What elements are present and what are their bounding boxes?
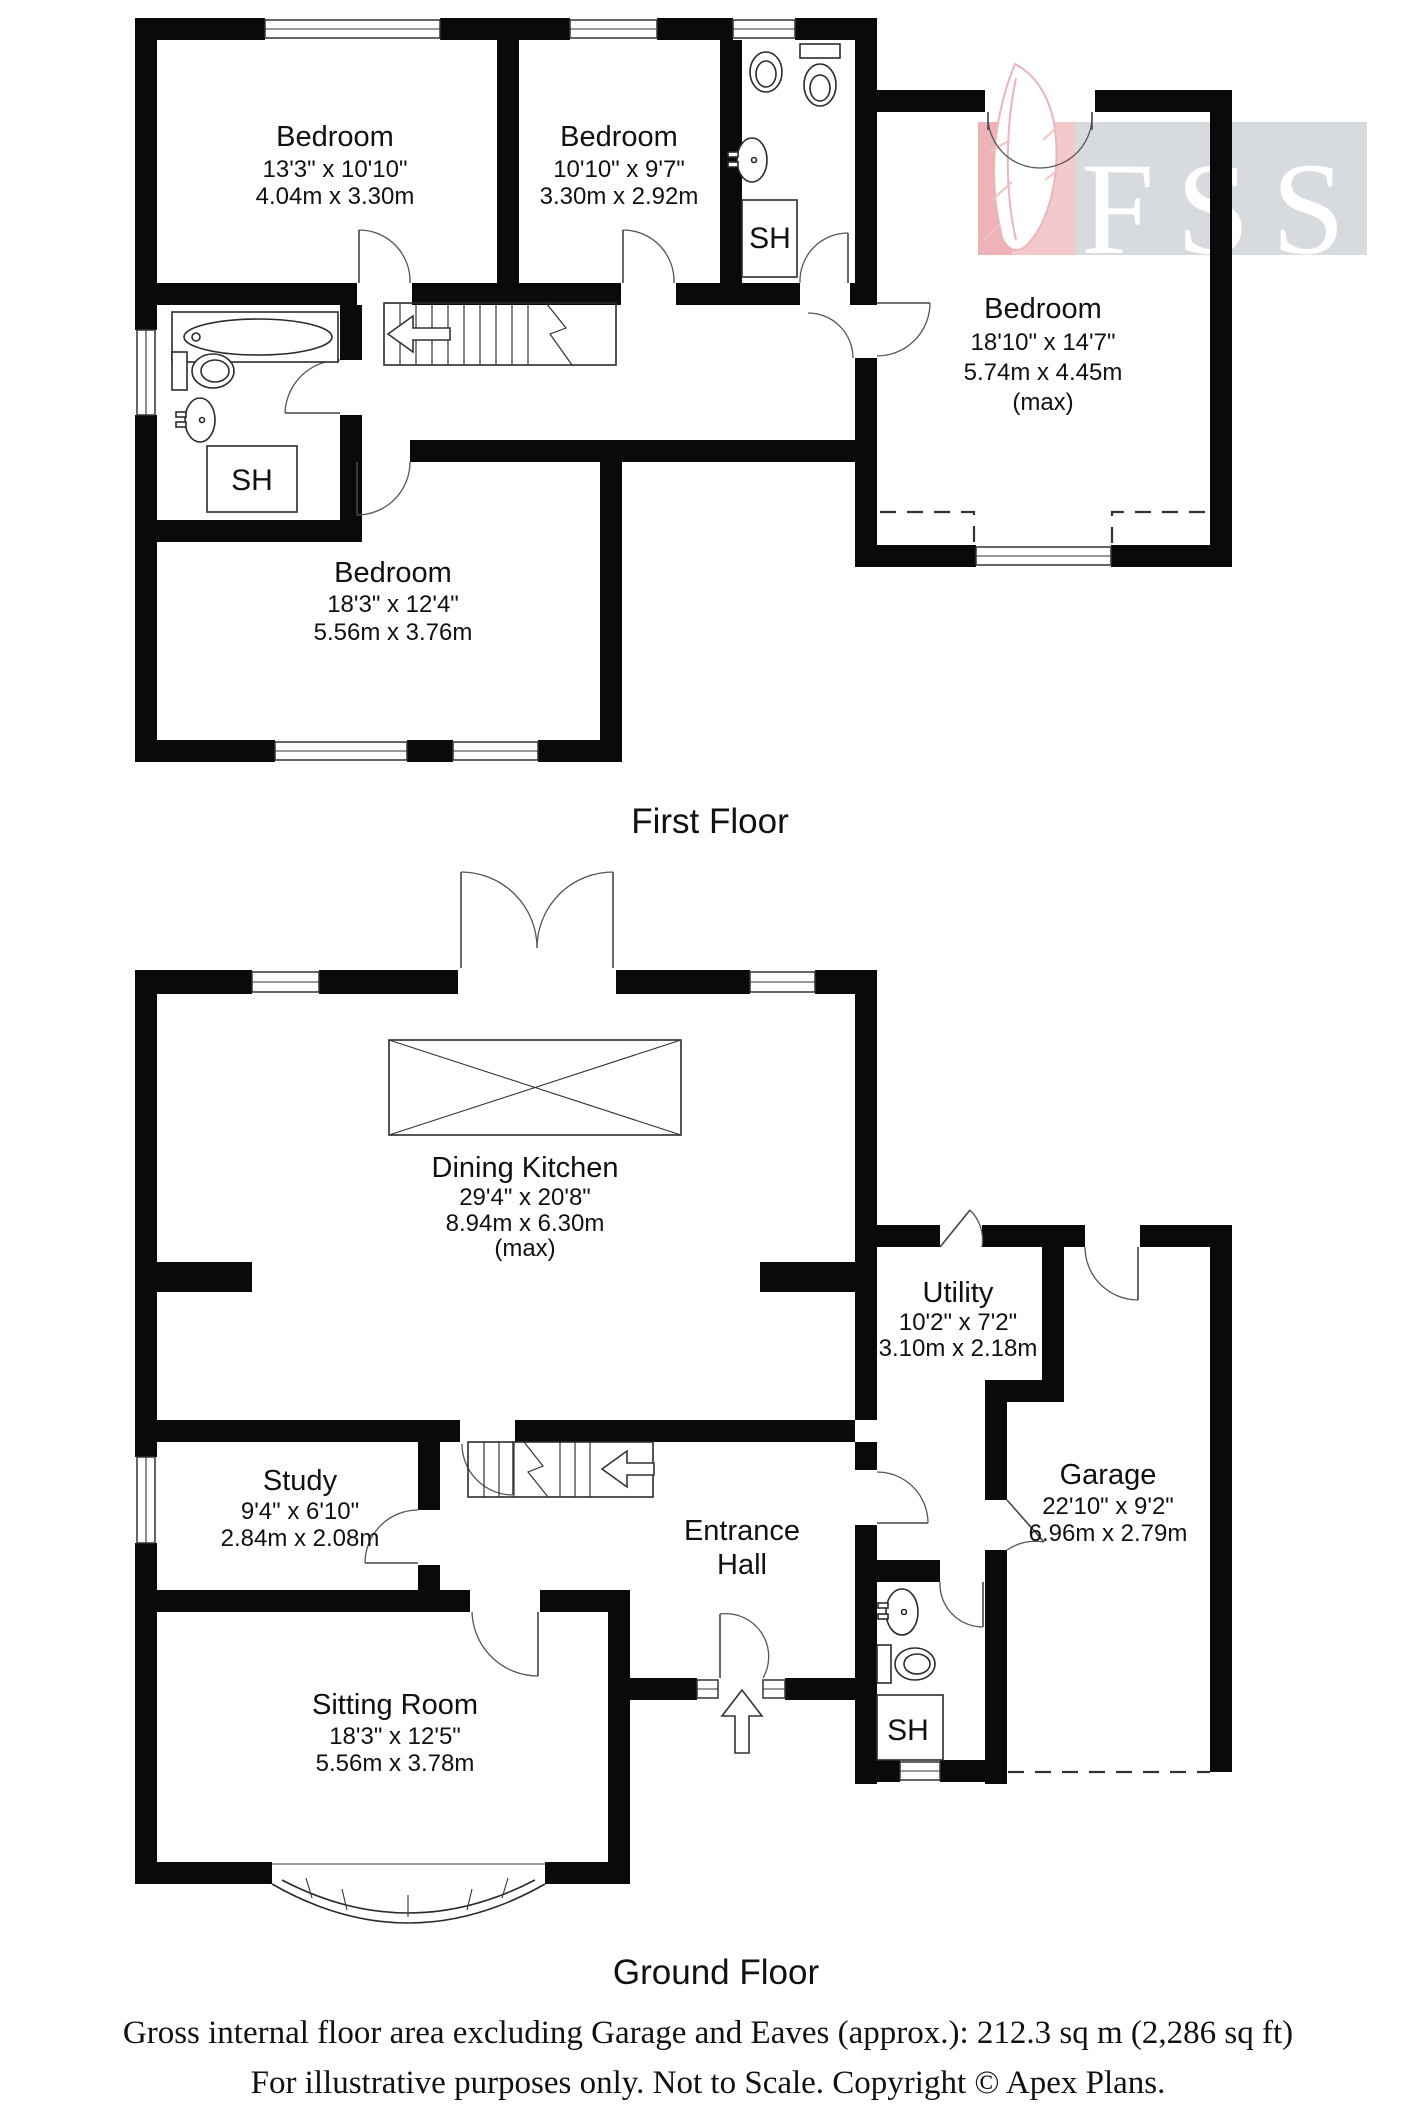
room-dims-bedroom2: 10'10" x 9'7": [553, 156, 685, 183]
kitchen-rooflight-box: [389, 1040, 681, 1135]
room-label-utility: Utility: [923, 1277, 994, 1309]
room-metric-study: 2.84m x 2.08m: [221, 1525, 380, 1552]
footer-area-text: Gross internal floor area excluding Gara…: [123, 2015, 1293, 2051]
room-label-bedroom2: Bedroom: [560, 121, 678, 153]
ground-floor-walls: [135, 970, 1232, 1884]
room-label-dining-kitchen: Dining Kitchen: [432, 1152, 619, 1184]
ground-floor-stairs: [468, 1442, 654, 1497]
eaves-dashed-line: [880, 512, 974, 543]
basin-icon: [176, 398, 215, 442]
room-dims-bedroom4: 18'3" x 12'4": [327, 591, 459, 618]
room-dims-sitting-room: 18'3" x 12'5": [329, 1723, 461, 1750]
entrance-arrow: [722, 1690, 762, 1753]
floorplan-page: FSS: [0, 0, 1417, 2126]
room-dims-utility: 10'2" x 7'2": [899, 1309, 1017, 1336]
room-label-entrance-hall-1: Entrance: [684, 1515, 800, 1547]
room-label-bedroom3: Bedroom: [984, 293, 1102, 325]
toilet-icon: [750, 52, 782, 92]
room-metric-bedroom2: 3.30m x 2.92m: [540, 183, 699, 210]
room-label-bedroom4: Bedroom: [334, 557, 452, 589]
toilet-icon: [172, 352, 234, 390]
room-metric-garage: 6.96m x 2.79m: [1029, 1520, 1188, 1547]
first-floor-title: First Floor: [631, 802, 789, 841]
ground-floor-plan: Dining Kitchen 29'4" x 20'8" 8.94m x 6.3…: [135, 872, 1232, 1923]
stairs-down-arrow: [388, 316, 450, 352]
room-label-entrance-hall-2: Hall: [717, 1549, 767, 1581]
eaves-dashed-line: [1112, 512, 1208, 543]
room-metric-dining-kitchen: 8.94m x 6.30m: [446, 1210, 605, 1237]
room-metric-bedroom1: 4.04m x 3.30m: [256, 183, 415, 210]
room-label-bedroom1: Bedroom: [276, 121, 394, 153]
room-metric-utility: 3.10m x 2.18m: [879, 1335, 1038, 1362]
first-floor-stairs: [384, 303, 616, 365]
footer: Gross internal floor area excluding Gara…: [123, 2015, 1293, 2101]
room-note-bedroom3: (max): [1012, 389, 1073, 416]
shower-label: SH: [749, 222, 791, 255]
room-dims-bedroom1: 13'3" x 10'10": [263, 156, 408, 183]
room-metric-bedroom3: 5.74m x 4.45m: [964, 359, 1123, 386]
room-dims-study: 9'4" x 6'10": [241, 1498, 359, 1525]
shower-label: SH: [231, 464, 273, 497]
room-note-dining-kitchen: (max): [494, 1235, 555, 1262]
bay-window: [272, 1864, 545, 1923]
room-metric-bedroom4: 5.56m x 3.76m: [314, 619, 473, 646]
room-dims-garage: 22'10" x 9'2": [1042, 1493, 1174, 1520]
room-metric-sitting-room: 5.56m x 3.78m: [316, 1750, 475, 1777]
toilet-icon: [800, 44, 840, 106]
basin-icon: [878, 1589, 918, 1635]
room-dims-dining-kitchen: 29'4" x 20'8": [459, 1184, 591, 1211]
room-label-garage: Garage: [1060, 1459, 1157, 1491]
toilet-icon: [877, 1645, 935, 1683]
room-label-study: Study: [263, 1465, 338, 1497]
ground-floor-title: Ground Floor: [613, 1953, 820, 1992]
footer-disclaimer-text: For illustrative purposes only. Not to S…: [251, 2065, 1166, 2101]
room-label-sitting-room: Sitting Room: [312, 1689, 478, 1721]
bathtub-icon: [172, 312, 338, 362]
shower-label: SH: [887, 1714, 929, 1747]
stairs-up-arrow: [602, 1451, 654, 1487]
room-dims-bedroom3: 18'10" x 14'7": [971, 329, 1116, 356]
floorplan-drawing: FSS: [0, 0, 1417, 2126]
